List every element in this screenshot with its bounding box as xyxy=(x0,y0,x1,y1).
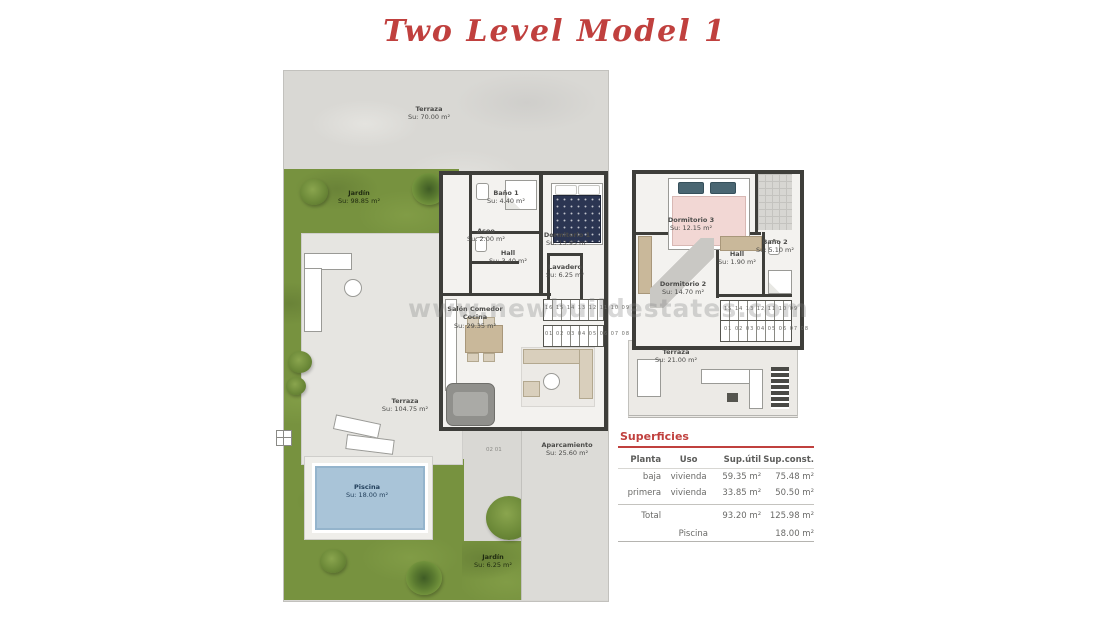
room-label-piscina: Piscina Su: 18.00 m² xyxy=(334,483,400,500)
terrace-grill-unit xyxy=(771,367,789,409)
car xyxy=(446,383,495,426)
pillow xyxy=(578,185,600,195)
table-divider xyxy=(618,504,814,505)
table-row: baja vivienda 59.35 m² 75.48 m² xyxy=(618,469,814,485)
palm-tree xyxy=(406,561,442,595)
room-label-lavadero: Lavadero Su: 6.25 m² xyxy=(540,263,590,280)
roof-terrace-tiles xyxy=(758,174,792,230)
room-label-aparcamiento: Aparcamiento Su: 25.60 m² xyxy=(534,441,600,458)
armchair xyxy=(523,381,540,397)
chair xyxy=(483,353,495,362)
ground-floor-plot: 16 15 14 13 12 11 10 09 01 02 03 04 05 0… xyxy=(283,70,609,602)
sofa-chaise xyxy=(579,349,593,399)
pillow xyxy=(678,182,704,194)
room-label-jardin-small: Jardín Su: 6.25 m² xyxy=(466,553,520,570)
room-label-terraza-top: Terraza Su: 70.00 m² xyxy=(389,105,469,122)
stair-numbers: 01 02 03 04 05 06 07 08 xyxy=(545,331,630,337)
wall xyxy=(547,253,583,256)
garden-bottom-center xyxy=(462,541,526,600)
window-marker-icon xyxy=(276,430,292,446)
table-total-row: Total 93.20 m² 125.98 m² xyxy=(618,508,814,524)
shower xyxy=(768,270,792,294)
tree xyxy=(300,179,328,205)
room-label-jardin: Jardín Su: 98.85 m² xyxy=(329,189,389,206)
room-label-bano1: Baño 1 Su: 4.40 m² xyxy=(476,189,536,206)
red-divider xyxy=(618,446,814,448)
pillow xyxy=(555,185,577,195)
tree xyxy=(286,377,306,395)
room-label-dormitorio3: Dormitorio 3 Su: 12.15 m² xyxy=(660,216,722,233)
surfaces-table: Superficies Planta Uso Sup.útil Sup.cons… xyxy=(618,430,814,542)
page-title: Two Level Model 1 xyxy=(300,14,810,49)
col-header-sup-const: Sup.const. xyxy=(761,455,814,465)
surfaces-title: Superficies xyxy=(620,430,814,443)
sofa xyxy=(523,349,587,364)
room-label-hall: Hall Su: 3.40 m² xyxy=(484,249,532,266)
floorplan-sheet: Two Level Model 1 xyxy=(0,0,1110,626)
tree xyxy=(320,549,346,573)
terrace-table xyxy=(727,393,738,402)
chair xyxy=(467,353,479,362)
col-header-sup-util: Sup.útil xyxy=(712,455,761,465)
table-header-row: Planta Uso Sup.útil Sup.const. xyxy=(618,452,814,469)
outdoor-kitchen-side xyxy=(304,268,322,332)
room-label-dormitorio1: Dormitorio 1 Su: 13.95 m² xyxy=(536,231,598,248)
terrace-sofa-chaise xyxy=(749,369,763,409)
room-label-aseo: Aseo Su: 2.00 m² xyxy=(462,227,510,244)
room-label-terraza-ff: Terraza Su: 21.00 m² xyxy=(646,348,706,365)
table-piscina-row: Piscina 18.00 m² xyxy=(618,526,814,542)
col-header-planta: Planta xyxy=(618,455,665,465)
room-label-bano2: Baño 2 Su: 5.10 m² xyxy=(752,238,798,255)
table-row: primera vivienda 33.85 m² 50.50 m² xyxy=(618,485,814,501)
wall xyxy=(755,174,758,234)
outdoor-table xyxy=(344,279,362,297)
room-label-terraza-main: Terraza Su: 104.75 m² xyxy=(368,397,442,414)
car-roof xyxy=(453,392,488,416)
watermark: www.newbuildestates.com xyxy=(408,294,808,323)
tree xyxy=(288,351,312,373)
pillow xyxy=(710,182,736,194)
coffee-table xyxy=(543,373,560,390)
stair-numbers: 01 02 03 04 05 06 07 08 xyxy=(724,326,809,332)
col-header-uso: Uso xyxy=(665,455,712,465)
